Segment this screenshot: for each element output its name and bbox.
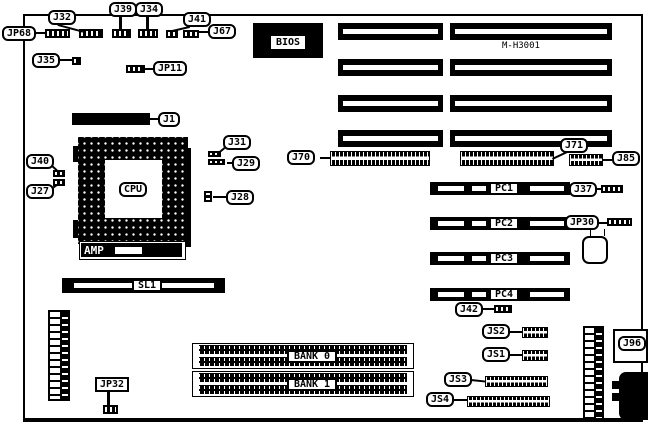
motherboard-diagram: JP68 J32 J39 J34 J41 J67 J35 JP11 BIOS M… [0, 0, 649, 429]
slot-notch [438, 221, 464, 226]
callout-j34: J34 [135, 2, 163, 17]
callout-j37: J37 [569, 182, 597, 197]
callout-js2: JS2 [482, 324, 510, 339]
amp-module-window [115, 247, 142, 254]
board-model-label: M-H3001 [502, 41, 540, 51]
callout-j85: J85 [612, 151, 640, 166]
keyboard-connector-tab [612, 381, 620, 389]
bios-chip-label: BIOS [271, 36, 305, 49]
callout-line [597, 188, 603, 190]
callout-line [59, 59, 73, 61]
callout-j27: J27 [26, 184, 54, 199]
slot-notch [530, 186, 564, 191]
callout-j70: J70 [287, 150, 315, 165]
socket-lever-tab [73, 220, 78, 238]
power-pin-column [50, 312, 62, 399]
callout-line [107, 392, 110, 406]
slot-notch [438, 256, 464, 261]
slot-notch [74, 283, 132, 288]
slot-notch [530, 221, 564, 226]
isa-slot [450, 59, 612, 76]
power-pin-column [585, 328, 596, 418]
pci-slot-pc1-label: PC1 [489, 182, 519, 195]
callout-j39: J39 [109, 2, 137, 17]
pci-slot-pc4-label: PC4 [489, 288, 519, 301]
jumper-block-j34 [138, 29, 158, 38]
isa-slot [450, 95, 612, 112]
isa-slot [338, 130, 443, 147]
header-js4 [467, 396, 550, 407]
slot-notch [438, 186, 464, 191]
jumper-block-jp32 [103, 405, 118, 414]
keyboard-connector-tab [612, 393, 620, 401]
cache-module-j1 [72, 113, 150, 125]
callout-line [590, 229, 591, 236]
callout-line [320, 157, 331, 159]
jumper-block-jp68 [45, 29, 70, 38]
callout-jp68: JP68 [2, 26, 36, 41]
callout-js4: JS4 [426, 392, 454, 407]
callout-j1: J1 [158, 112, 180, 127]
keyboard-connector [619, 372, 648, 420]
slot-notch [472, 292, 486, 297]
callout-line [598, 222, 608, 224]
callout-j31: J31 [223, 135, 251, 150]
power-connector-left [48, 310, 70, 401]
callout-j40: J40 [26, 154, 54, 169]
header-js1 [522, 350, 548, 361]
callout-j42: J42 [455, 302, 483, 317]
callout-j67: J67 [208, 24, 236, 39]
isa-slot [338, 23, 443, 40]
isa-slot [338, 59, 443, 76]
callout-jp30: JP30 [565, 215, 599, 230]
slot-notch [530, 292, 564, 297]
slot-notch [530, 256, 564, 261]
callout-line [119, 16, 122, 29]
callout-line [510, 331, 523, 333]
slot-notch [472, 256, 486, 261]
jumper-block-j29 [208, 159, 225, 165]
callout-line [604, 229, 605, 236]
callout-jp32: JP32 [95, 377, 129, 392]
callout-j32: J32 [48, 10, 76, 25]
jumper-block-j37 [601, 185, 623, 193]
cpu-label: CPU [119, 182, 147, 197]
header-j71 [460, 151, 554, 166]
header-j70 [330, 151, 430, 166]
slot-notch [162, 283, 214, 288]
callout-jp11: JP11 [153, 61, 187, 76]
jumper-block-j39 [112, 29, 131, 38]
callout-line [453, 399, 468, 401]
isa-slot [450, 23, 612, 40]
jumper-block-j35 [72, 57, 81, 65]
callout-js3: JS3 [444, 372, 472, 387]
callout-line [483, 308, 495, 310]
jumper-block-j28 [204, 191, 212, 202]
callout-line [36, 32, 45, 34]
simm-bank-1-label: BANK 1 [287, 378, 337, 391]
jumper-block-jp11 [126, 65, 145, 73]
slot-notch [472, 221, 486, 226]
callout-j71: J71 [560, 138, 588, 153]
callout-line [510, 354, 523, 356]
jumper-block-jp30 [607, 218, 632, 226]
jumper-block-j67 [183, 30, 199, 38]
pci-slot-pc2-label: PC2 [489, 217, 519, 230]
sl1-slot-label: SL1 [132, 279, 162, 292]
jumper-block-j40 [53, 170, 65, 177]
simm-bank-0-label: BANK 0 [287, 350, 337, 363]
jumper-block-j42 [494, 305, 512, 313]
isa-slot [338, 95, 443, 112]
header-js2 [522, 327, 548, 338]
socket-lever-tab [73, 146, 78, 162]
battery-outline [582, 236, 608, 264]
power-pin-column [596, 328, 602, 418]
callout-j29: J29 [232, 156, 260, 171]
pci-slot-pc3-label: PC3 [489, 252, 519, 265]
header-j85 [569, 154, 603, 166]
callout-line [146, 16, 149, 29]
callout-j41: J41 [183, 12, 211, 27]
slot-notch [438, 292, 464, 297]
header-js3 [485, 376, 548, 387]
callout-j96: J96 [618, 336, 646, 351]
slot-notch [472, 186, 486, 191]
power-pin-column [62, 312, 68, 399]
callout-j35: J35 [32, 53, 60, 68]
power-connector-right [583, 326, 604, 420]
callout-j28: J28 [226, 190, 254, 205]
callout-js1: JS1 [482, 347, 510, 362]
